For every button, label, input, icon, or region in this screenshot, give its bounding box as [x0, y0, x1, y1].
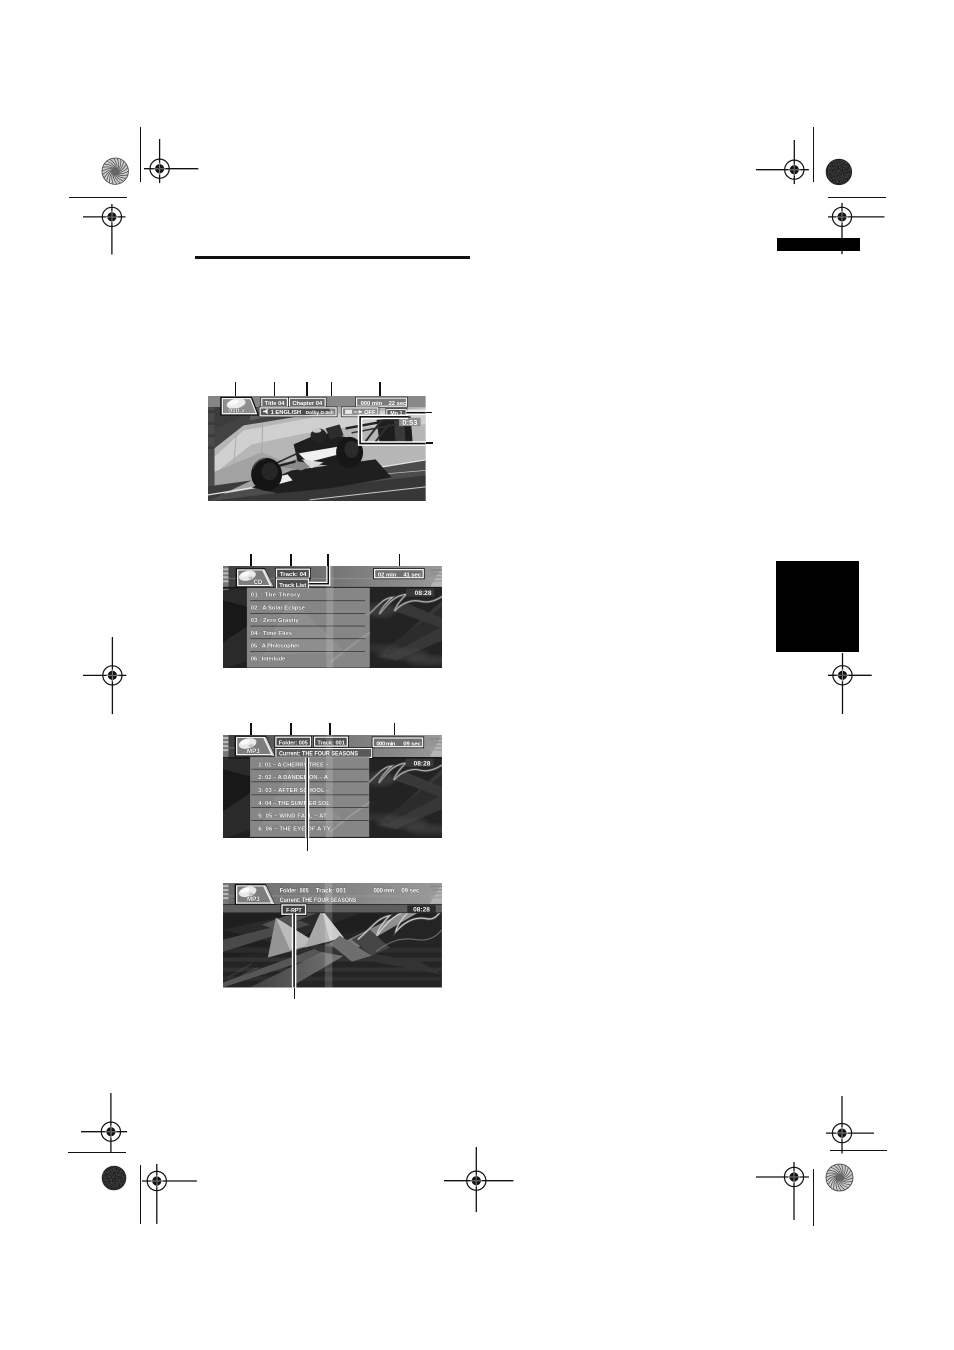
- svg-text:000 min: 000 min: [377, 741, 396, 747]
- svg-text:02 : A Solar Eclipse: 02 : A Solar Eclipse: [250, 605, 305, 611]
- svg-text:Dolby D 2ch: Dolby D 2ch: [306, 409, 334, 415]
- svg-text:06 : Interlude: 06 : Interlude: [250, 656, 285, 662]
- svg-text:41 sec: 41 sec: [403, 572, 421, 578]
- svg-text:Chapter 04: Chapter 04: [293, 401, 324, 407]
- svg-text:08:28: 08:28: [414, 760, 431, 767]
- svg-text:Title 04: Title 04: [265, 401, 286, 407]
- svg-text:CD: CD: [253, 580, 262, 586]
- svg-text:2: 02 – A DANDELION – A: 2: 02 – A DANDELION – A: [258, 775, 328, 781]
- svg-text:Folder: 005: Folder: 005: [279, 740, 309, 746]
- svg-text:1: 01 – A CHERRY TREE –: 1: 01 – A CHERRY TREE –: [258, 762, 329, 768]
- svg-text:02 min: 02 min: [377, 572, 396, 578]
- svg-text:04 : Time Flies: 04 : Time Flies: [250, 630, 292, 636]
- svg-text:F-RPT: F-RPT: [286, 908, 302, 914]
- svg-text:4: 04 – THE SUMMER SOL: 4: 04 – THE SUMMER SOL: [258, 801, 330, 807]
- svg-text:000 min: 000 min: [374, 888, 395, 895]
- svg-text:0:53: 0:53: [403, 418, 418, 427]
- svg-text:000 min: 000 min: [361, 401, 383, 407]
- svg-text:5: 05 – WIND FALL – AT: 5: 05 – WIND FALL – AT: [258, 813, 327, 819]
- svg-text:08:28: 08:28: [414, 590, 431, 597]
- svg-text:1 ENGLISH: 1 ENGLISH: [271, 410, 302, 416]
- svg-text:03 : Zero Gravity: 03 : Zero Gravity: [250, 618, 299, 624]
- svg-text:Folder: 005: Folder: 005: [280, 888, 310, 895]
- svg-text:Track: 04: Track: 04: [279, 572, 306, 578]
- svg-text:01 : The Theory: 01 : The Theory: [250, 592, 300, 598]
- svg-text:Current: THE FOUR SEASONS: Current: THE FOUR SEASONS: [279, 752, 358, 758]
- svg-text:6: 06 – THE EYE OF A TY: 6: 06 – THE EYE OF A TY: [258, 826, 330, 832]
- svg-text:22 sec: 22 sec: [389, 401, 407, 407]
- svg-text:Current: THE FOUR SEASONS: Current: THE FOUR SEASONS: [280, 897, 357, 904]
- svg-text:05 : A Philosopher: 05 : A Philosopher: [250, 643, 299, 649]
- svg-text:09 sec: 09 sec: [403, 741, 421, 747]
- svg-text:MP3: MP3: [247, 748, 260, 755]
- svg-text:08:28: 08:28: [413, 907, 430, 914]
- svg-text:DVD-V: DVD-V: [229, 408, 246, 414]
- svg-text:09 sec: 09 sec: [402, 888, 421, 895]
- svg-text:MP3: MP3: [247, 897, 260, 904]
- svg-text:3: 03 – AFTER SCHOOL –: 3: 03 – AFTER SCHOOL –: [258, 788, 330, 794]
